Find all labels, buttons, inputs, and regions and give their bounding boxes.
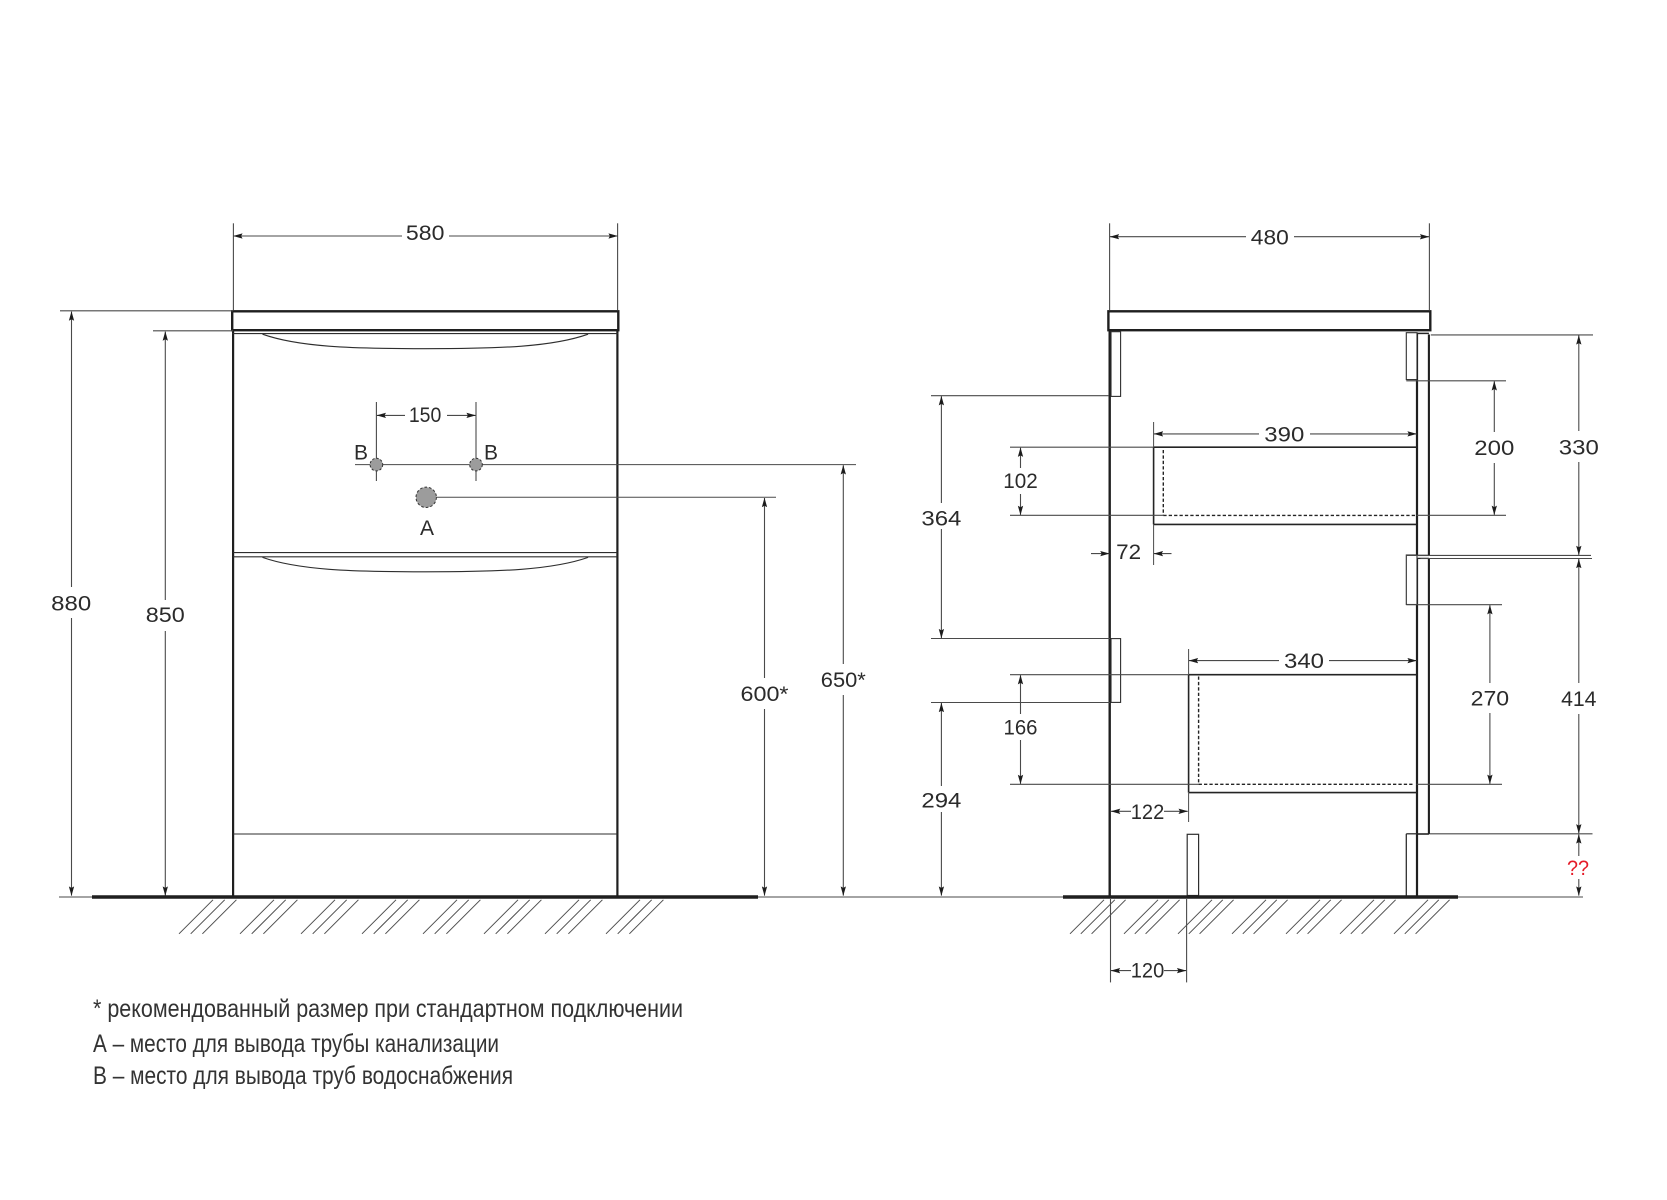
svg-text:B: B xyxy=(484,442,498,465)
svg-text:414: 414 xyxy=(1561,688,1597,711)
svg-text:122: 122 xyxy=(1131,801,1165,824)
svg-text:A: A xyxy=(420,517,434,540)
svg-text:650*: 650* xyxy=(821,669,866,692)
svg-text:850: 850 xyxy=(146,604,185,627)
svg-text:120: 120 xyxy=(1131,959,1165,982)
svg-text:А – место для вывода трубы кан: А – место для вывода трубы канализации xyxy=(93,1030,499,1058)
svg-text:330: 330 xyxy=(1559,436,1599,459)
svg-text:600*: 600* xyxy=(741,683,789,706)
svg-text:580: 580 xyxy=(406,222,445,245)
svg-text:102: 102 xyxy=(1003,470,1038,493)
svg-text:* рекомендованный размер при с: * рекомендованный размер при стандартном… xyxy=(93,995,683,1023)
svg-text:480: 480 xyxy=(1251,226,1289,249)
svg-text:200: 200 xyxy=(1474,437,1514,460)
svg-text:270: 270 xyxy=(1471,688,1510,711)
svg-text:B: B xyxy=(354,442,368,465)
svg-text:??: ?? xyxy=(1567,857,1589,880)
svg-text:294: 294 xyxy=(921,789,961,812)
svg-text:72: 72 xyxy=(1116,541,1141,564)
svg-text:340: 340 xyxy=(1284,650,1324,673)
svg-text:150: 150 xyxy=(409,404,442,427)
svg-text:В – место для вывода труб водо: В – место для вывода труб водоснабжения xyxy=(93,1062,513,1090)
svg-text:364: 364 xyxy=(921,508,961,531)
svg-text:880: 880 xyxy=(51,592,91,615)
svg-text:390: 390 xyxy=(1264,424,1304,447)
svg-text:166: 166 xyxy=(1004,717,1038,740)
